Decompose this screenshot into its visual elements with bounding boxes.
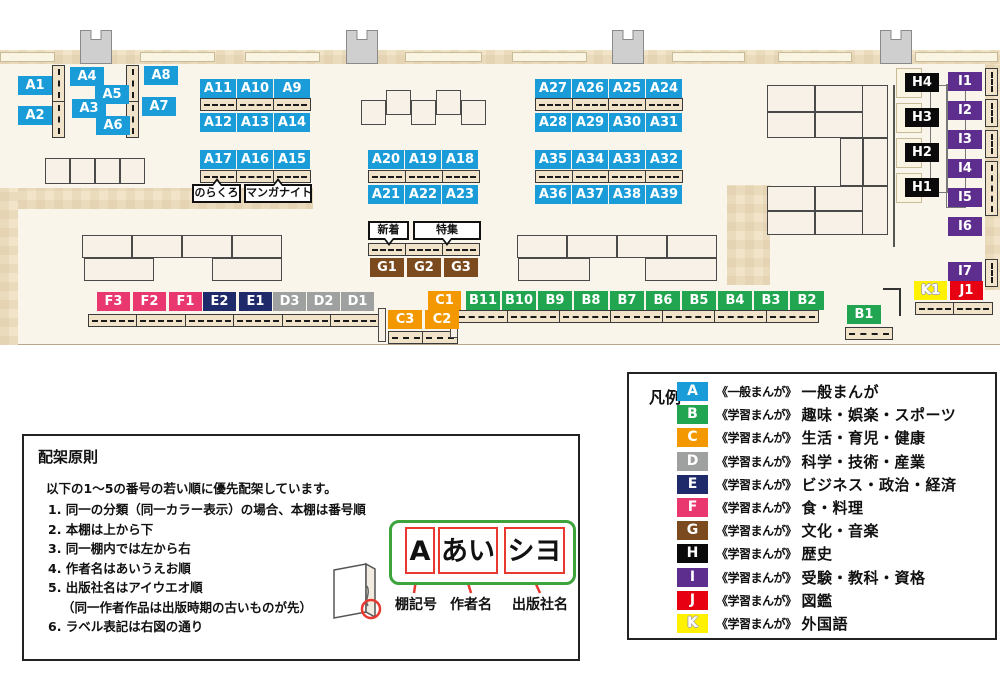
shelf-label-a2: A2: [18, 106, 52, 125]
shelf-label-e2: E2: [203, 292, 236, 311]
shelf-strip: [985, 99, 998, 127]
shelf-strip-section: [405, 243, 443, 256]
legend-scope: 《学習まんが》: [716, 615, 797, 632]
callout-label: 特集: [413, 221, 481, 240]
shelf-strip-section: [330, 314, 380, 327]
callout-label: マンガナイト: [244, 184, 312, 203]
legend-scope: 《学習まんが》: [716, 453, 797, 470]
legend-scope: 《学習まんが》: [716, 592, 797, 609]
wall-line: [893, 85, 895, 247]
shelf-label-a25: A25: [609, 79, 645, 98]
shelf-strip: [915, 302, 993, 315]
shelf-unit: [767, 211, 815, 235]
shelf-label-k1: K1: [914, 281, 947, 300]
spine-label-part: シヨ: [504, 527, 565, 574]
shelf-label-a28: A28: [535, 113, 571, 132]
shelf-unit: [461, 100, 486, 125]
shelf-unit: [617, 235, 667, 258]
principles-intro: 以下の1～5の番号の若い順に優先配架しています。: [46, 478, 337, 497]
callout-label: のらくろ: [192, 184, 241, 203]
shelf-strip-section: [645, 170, 683, 183]
shelf-label-a6: A6: [96, 116, 130, 135]
wall-segment: [0, 52, 55, 62]
floor-map: A1A4A8A5A2A3A7A6A11A10A9A12A13A14A17A16A…: [0, 0, 1000, 360]
shelf-unit: [767, 112, 815, 138]
shelf-label-a39: A39: [646, 185, 682, 204]
shelf-unit: [182, 235, 232, 258]
shelf-unit: [815, 112, 863, 138]
shelf-label-b1: B1: [847, 305, 881, 324]
shelf-label-a22: A22: [405, 185, 441, 204]
shelf-label-a13: A13: [237, 113, 273, 132]
shelf-strip-section: [282, 314, 332, 327]
legend-category: 一般まんが: [802, 381, 880, 402]
shelf-strip: [985, 68, 998, 96]
principles-item: 6. ラベル表記は右図の通り: [48, 617, 366, 637]
legend-row-k: K《学習まんが》外国語: [677, 612, 991, 635]
legend-category: 受験・教科・資格: [802, 567, 926, 588]
shelf-strip-section: [953, 302, 993, 315]
shelf-label-h2: H2: [905, 143, 939, 162]
principles-item: （同一作者作品は出版時期の古いものが先）: [48, 598, 366, 618]
shelf-label-i4: I4: [948, 159, 982, 178]
shelf-strip-section: [200, 98, 238, 111]
shelf-label-a30: A30: [609, 113, 645, 132]
shelf-unit: [667, 235, 717, 258]
legend-color-chip: A: [677, 382, 708, 401]
shelf-unit: [815, 211, 863, 235]
legend-scope: 《学習まんが》: [716, 406, 797, 423]
legend-scope: 《学習まんが》: [716, 545, 797, 562]
shelf-strip: [845, 327, 893, 340]
shelf-strip-section: [136, 314, 186, 327]
legend-category: 図鑑: [802, 590, 833, 611]
shelf-label-a32: A32: [646, 150, 682, 169]
shelf-strip-section: [714, 310, 767, 323]
legend-row-d: D《学習まんが》科学・技術・産業: [677, 450, 991, 473]
shelf-label-a31: A31: [646, 113, 682, 132]
shelf-strip-section: [368, 170, 406, 183]
shelf-unit: [645, 258, 717, 281]
shelf-label-i2: I2: [948, 101, 982, 120]
shelf-label-a27: A27: [535, 79, 571, 98]
shelf-unit: [212, 258, 282, 281]
legend-category: ビジネス・政治・経済: [802, 474, 957, 495]
pillar: [80, 30, 112, 64]
spine-label-part: A: [405, 527, 435, 574]
shelf-strip: [368, 170, 480, 183]
shelf-strip: [535, 98, 683, 111]
shelf-strip: [535, 170, 683, 183]
shelf-label-a14: A14: [274, 113, 310, 132]
shelf-strip: [985, 259, 998, 287]
shelf-strip: [52, 101, 65, 138]
shelf-strip-section: [405, 170, 443, 183]
legend-category: 外国語: [802, 613, 849, 634]
wall-segment: [245, 52, 320, 62]
shelf-label-a21: A21: [368, 185, 404, 204]
wall-segment: [512, 52, 587, 62]
legend-color-chip: D: [677, 452, 708, 471]
legend-color-chip: K: [677, 614, 708, 633]
principles-panel: 配架原則 以下の1～5の番号の若い順に優先配架しています。 1. 同一の分類（同…: [22, 434, 580, 661]
shelf-label-a19: A19: [405, 150, 441, 169]
book-ribbon: [367, 586, 369, 606]
shelf-unit: [95, 158, 120, 184]
legend-row-f: F《学習まんが》食・料理: [677, 496, 991, 519]
shelf-label-b11: B11: [466, 291, 500, 310]
wall-segment: [778, 52, 852, 62]
shelf-label-g3: G3: [444, 258, 478, 277]
shelf-strip: [52, 65, 65, 102]
shelf-label-c1: C1: [428, 291, 461, 310]
shelf-label-a33: A33: [609, 150, 645, 169]
legend-rows: A《一般まんが》一般まんがB《学習まんが》趣味・娯楽・スポーツC《学習まんが》生…: [677, 380, 991, 635]
shelf-strip-section: [233, 314, 283, 327]
shelf-unit: [815, 85, 863, 112]
shelf-strip-section: [236, 170, 274, 183]
wall-segment: [405, 52, 482, 62]
wall-segment: [915, 52, 998, 62]
shelf-strip-section: [572, 170, 610, 183]
shelf-label-a15: A15: [274, 150, 310, 169]
legend-category: 生活・育児・健康: [802, 427, 926, 448]
shelf-label-b8: B8: [574, 291, 608, 310]
shelf-label-g2: G2: [407, 258, 441, 277]
shelf-label-a38: A38: [609, 185, 645, 204]
spine-label-caption: 出版社名: [512, 594, 568, 614]
legend-row-j: J《学習まんが》図鑑: [677, 589, 991, 612]
shelf-strip-section: [766, 310, 819, 323]
floor-wall-band: [0, 188, 18, 345]
legend-color-chip: F: [677, 498, 708, 517]
shelf-label-e1: E1: [239, 292, 272, 311]
legend-scope: 《学習まんが》: [716, 476, 797, 493]
spine-label-caption: 作者名: [450, 594, 492, 614]
shelf-label-c2: C2: [425, 310, 459, 329]
shelf-label-a8: A8: [144, 66, 178, 85]
legend-scope: 《学習まんが》: [716, 429, 797, 446]
shelf-label-i3: I3: [948, 130, 982, 149]
shelf-unit: [840, 138, 863, 186]
pillar: [346, 30, 378, 64]
shelf-label-a10: A10: [237, 79, 273, 98]
shelf-unit: [82, 235, 132, 258]
legend-row-a: A《一般まんが》一般まんが: [677, 380, 991, 403]
shelf-strip-section: [455, 310, 508, 323]
shelf-unit: [436, 90, 461, 115]
shelf-label-b9: B9: [538, 291, 572, 310]
shelf-label-a18: A18: [442, 150, 478, 169]
principles-title: 配架原則: [38, 446, 98, 467]
shelf-label-j1: J1: [950, 281, 983, 300]
shelf-label-b10: B10: [502, 291, 536, 310]
shelf-label-b6: B6: [646, 291, 680, 310]
shelf-strip-section: [507, 310, 560, 323]
shelf-strip-section: [608, 170, 646, 183]
shelf-strip: [455, 310, 819, 323]
shelf-label-i6: I6: [948, 217, 982, 236]
shelf-unit: [232, 235, 282, 258]
shelf-label-a29: A29: [572, 113, 608, 132]
shelf-label-d3: D3: [273, 292, 306, 311]
shelf-strip-section: [610, 310, 663, 323]
shelf-label-h4: H4: [905, 73, 939, 92]
shelf-label-h3: H3: [905, 108, 939, 127]
shelf-strip-section: [608, 98, 646, 111]
shelf-strip-section: [236, 98, 274, 111]
shelf-label-b2: B2: [790, 291, 824, 310]
shelf-label-a37: A37: [572, 185, 608, 204]
shelf-unit: [70, 158, 95, 184]
shelf-label-f2: F2: [133, 292, 166, 311]
shelf-unit: [386, 90, 411, 115]
shelf-strip-section: [442, 170, 480, 183]
legend-row-i: I《学習まんが》受験・教科・資格: [677, 566, 991, 589]
legend-scope: 《学習まんが》: [716, 569, 797, 586]
shelf-label-a4: A4: [70, 67, 104, 86]
legend-row-c: C《学習まんが》生活・育児・健康: [677, 426, 991, 449]
shelf-unit: [411, 100, 436, 125]
legend-category: 趣味・娯楽・スポーツ: [802, 404, 957, 425]
shelf-unit: [567, 235, 617, 258]
legend-color-chip: E: [677, 475, 708, 494]
shelf-unit: [862, 85, 888, 138]
shelf-label-a20: A20: [368, 150, 404, 169]
shelf-strip-section: [845, 327, 893, 340]
shelf-label-a9: A9: [274, 79, 310, 98]
shelf-label-b3: B3: [754, 291, 788, 310]
legend-scope: 《学習まんが》: [716, 499, 797, 516]
shelf-label-i1: I1: [948, 72, 982, 91]
legend-category: 科学・技術・産業: [802, 451, 926, 472]
shelf-label-a35: A35: [535, 150, 571, 169]
wall-segment: [140, 52, 215, 62]
shelf-strip-section: [185, 314, 235, 327]
shelf-label-b4: B4: [718, 291, 752, 310]
shelf-unit: [863, 138, 888, 186]
shelf-unit: [517, 235, 567, 258]
legend-row-b: B《学習まんが》趣味・娯楽・スポーツ: [677, 403, 991, 426]
pillar: [880, 30, 912, 64]
shelf-unit: [767, 186, 815, 211]
legend-color-chip: C: [677, 428, 708, 447]
shelf-label-a12: A12: [200, 113, 236, 132]
legend-row-e: E《学習まんが》ビジネス・政治・経済: [677, 473, 991, 496]
legend-row-h: H《学習まんが》歴史: [677, 542, 991, 565]
legend-panel: 凡例 A《一般まんが》一般まんがB《学習まんが》趣味・娯楽・スポーツC《学習まん…: [627, 372, 997, 640]
legend-category: 文化・音楽: [802, 520, 880, 541]
library-floor-map-page: A1A4A8A5A2A3A7A6A11A10A9A12A13A14A17A16A…: [0, 0, 1000, 700]
shelf-label-a7: A7: [142, 97, 176, 116]
shelf-label-g1: G1: [370, 258, 404, 277]
shelf-unit: [378, 308, 386, 342]
shelf-unit: [84, 258, 154, 281]
spine-label-caption: 棚記号: [395, 594, 437, 614]
shelf-strip: [985, 161, 998, 216]
shelf-label-b7: B7: [610, 291, 644, 310]
principles-item: 3. 同一棚内では左から右: [48, 539, 366, 559]
shelf-strip-section: [645, 98, 683, 111]
shelf-strip: [200, 98, 311, 111]
pillar: [612, 30, 644, 64]
shelf-strip-section: [572, 98, 610, 111]
legend-color-chip: I: [677, 568, 708, 587]
wall-corner: [883, 288, 901, 316]
principles-item: 5. 出版社名はアイウエオ順: [48, 578, 366, 598]
legend-scope: 《学習まんが》: [716, 522, 797, 539]
shelf-label-a34: A34: [572, 150, 608, 169]
legend-color-chip: J: [677, 591, 708, 610]
shelf-unit: [862, 186, 888, 235]
shelf-unit: [767, 85, 815, 112]
shelf-strip: [88, 314, 380, 327]
shelf-label-i7: I7: [948, 262, 982, 281]
shelf-label-d1: D1: [341, 292, 374, 311]
legend-color-chip: H: [677, 544, 708, 563]
principles-item: 4. 作者名はあいうえお順: [48, 559, 366, 579]
legend-row-g: G《学習まんが》文化・音楽: [677, 519, 991, 542]
shelf-label-b5: B5: [682, 291, 716, 310]
shelf-unit: [815, 186, 863, 211]
shelf-strip-section: [388, 331, 424, 344]
shelf-strip-section: [535, 170, 573, 183]
shelf-label-a26: A26: [572, 79, 608, 98]
shelf-strip-section: [559, 310, 612, 323]
shelf-unit: [361, 100, 386, 125]
shelf-strip-section: [915, 302, 955, 315]
shelf-unit: [45, 158, 70, 184]
shelf-strip-section: [273, 98, 311, 111]
callout-label: 新着: [368, 221, 409, 240]
legend-scope: 《一般まんが》: [716, 383, 797, 400]
shelf-label-d2: D2: [307, 292, 340, 311]
legend-category: 食・料理: [802, 497, 864, 518]
principles-item: 2. 本棚は上から下: [48, 520, 366, 540]
shelf-strip-section: [88, 314, 138, 327]
shelf-label-a23: A23: [442, 185, 478, 204]
principles-list: 1. 同一の分類（同一カラー表示）の場合、本棚は番号順2. 本棚は上から下3. …: [48, 500, 366, 637]
shelf-strip-section: [535, 98, 573, 111]
floor-wall-band: [727, 185, 770, 285]
shelf-label-f1: F1: [169, 292, 202, 311]
shelf-label-c3: C3: [388, 310, 422, 329]
wall-segment: [672, 52, 745, 62]
shelf-label-a1: A1: [18, 76, 52, 95]
shelf-strip: [388, 331, 458, 344]
legend-color-chip: B: [677, 405, 708, 424]
legend-category: 歴史: [802, 543, 833, 564]
shelf-label-f3: F3: [97, 292, 130, 311]
shelf-label-a16: A16: [237, 150, 273, 169]
shelf-strip: [985, 130, 998, 158]
shelf-label-i5: I5: [948, 188, 982, 207]
shelf-label-a17: A17: [200, 150, 236, 169]
shelf-label-a11: A11: [200, 79, 236, 98]
legend-color-chip: G: [677, 521, 708, 540]
spine-label-part: あい: [438, 527, 498, 574]
shelf-unit: [120, 158, 145, 184]
shelf-unit: [132, 235, 182, 258]
shelf-strip-section: [662, 310, 715, 323]
spine-label-diagram: Aあいシヨ: [389, 520, 576, 585]
principles-item: 1. 同一の分類（同一カラー表示）の場合、本棚は番号順: [48, 500, 366, 520]
shelf-label-a24: A24: [646, 79, 682, 98]
shelf-unit: [518, 258, 590, 281]
shelf-label-a36: A36: [535, 185, 571, 204]
shelf-label-h1: H1: [905, 178, 939, 197]
